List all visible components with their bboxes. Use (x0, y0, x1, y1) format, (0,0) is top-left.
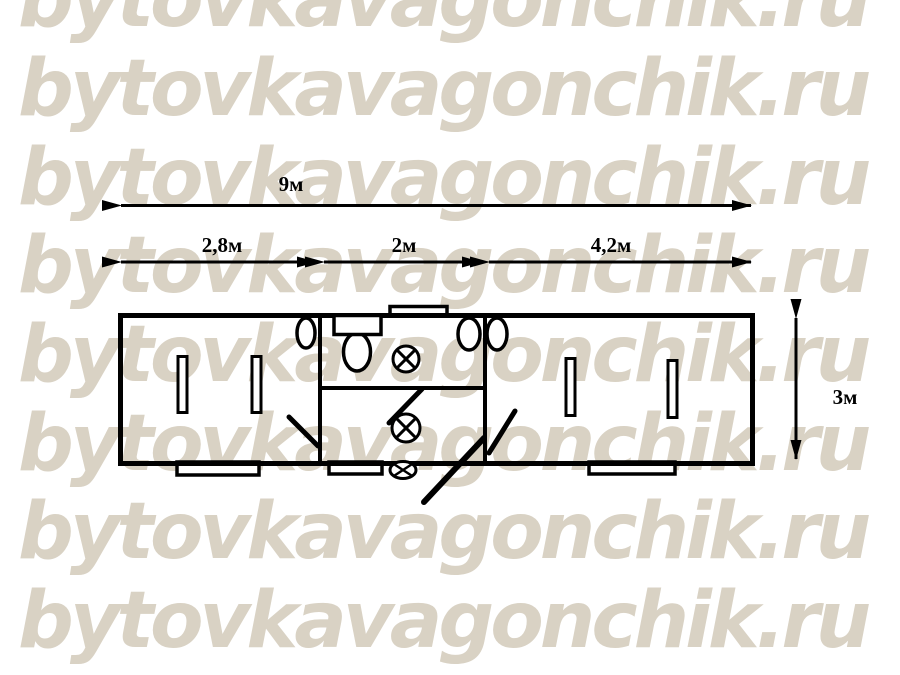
dimension-label-9m: 9м (279, 172, 304, 196)
toilet-bowl (344, 333, 371, 371)
watermark-text-row: bytovkavagonchik.ru (18, 44, 870, 134)
watermark-text-row: bytovkavagonchik.ru (18, 133, 870, 223)
window-slat (668, 361, 677, 418)
wall-basin (487, 318, 507, 350)
ceiling-lamp (393, 346, 419, 372)
dimension-label-3m: 3м (833, 385, 858, 409)
watermark: bytovkavagonchik.ru bytovkavagonchik.ru … (18, 0, 870, 666)
toilet-tank (334, 316, 381, 335)
watermark-text-row: bytovkavagonchik.ru (18, 221, 870, 311)
window-slat (178, 357, 187, 413)
screenshot-canvas: bytovkavagonchik.ru bytovkavagonchik.ru … (0, 0, 900, 675)
window-slat (252, 357, 261, 413)
entrance-lamp (390, 462, 416, 479)
dimension-label-4-2m: 4,2м (591, 233, 632, 257)
wall-basin (297, 318, 315, 348)
dimension-label-2m: 2м (392, 233, 417, 257)
dimension-label-2-8m: 2,8м (202, 233, 243, 257)
watermark-text-row: bytovkavagonchik.ru (18, 0, 870, 45)
watermark-text-row: bytovkavagonchik.ru (18, 576, 870, 666)
watermark-text-row: bytovkavagonchik.ru (18, 399, 870, 489)
floor-plan-diagram: bytovkavagonchik.ru bytovkavagonchik.ru … (0, 0, 900, 675)
watermark-text-row: bytovkavagonchik.ru (18, 487, 870, 577)
wall-basin (458, 318, 480, 350)
window-slat (566, 359, 575, 416)
